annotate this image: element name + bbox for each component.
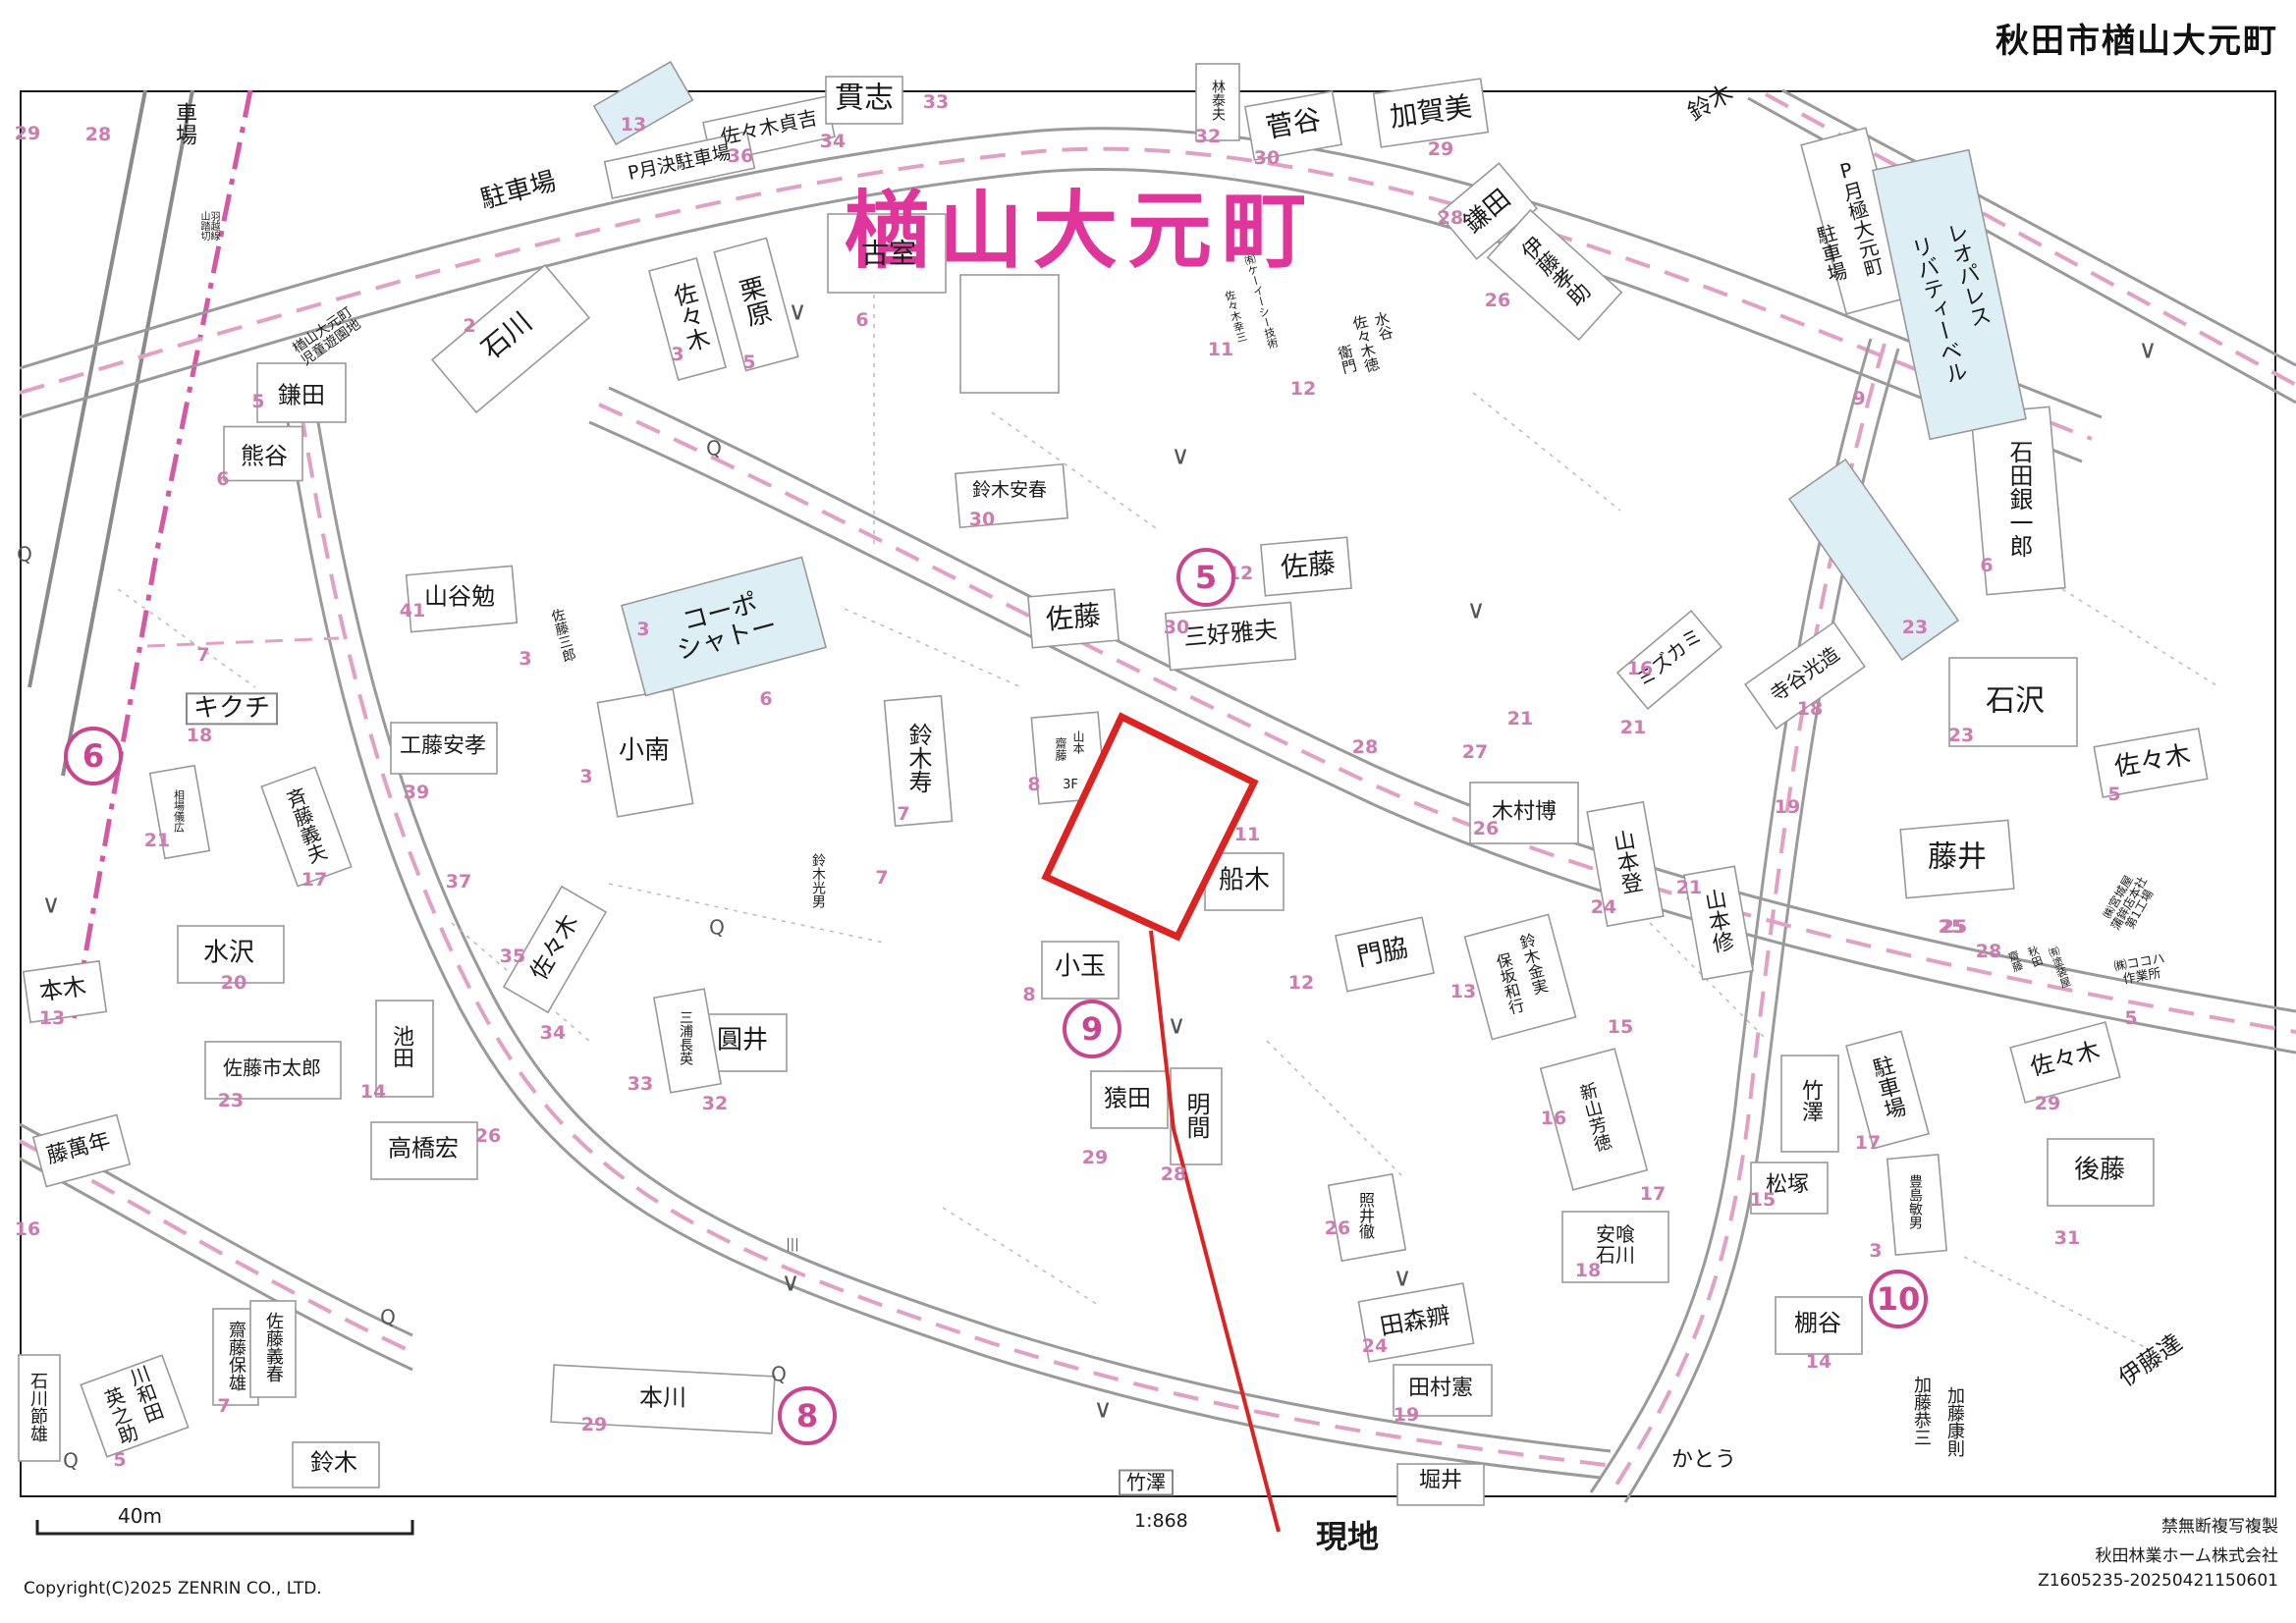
- map-label: 高橋宏: [388, 1136, 459, 1161]
- parcel-number: 33: [923, 93, 949, 113]
- parcel-number: 26: [475, 1127, 501, 1147]
- parcel-number: 5: [113, 1451, 126, 1471]
- circled-block-number: 5: [1176, 548, 1235, 607]
- parcel-number: 5: [742, 353, 755, 373]
- parcel-number: 25: [1939, 918, 1964, 938]
- map-label: 佐藤: [1280, 549, 1337, 582]
- parcel-number: 28: [1438, 209, 1463, 229]
- map-label: 石川節雄: [28, 1372, 46, 1442]
- parcel-number: 3: [636, 621, 649, 640]
- parcel-number: 23: [218, 1092, 244, 1111]
- circled-block-number: 6: [64, 727, 123, 785]
- notice: 禁無断複写複製: [2161, 1512, 2278, 1537]
- parcel-number: 18: [1575, 1262, 1601, 1281]
- map-label: かとう: [1671, 1448, 1736, 1471]
- map-symbol: Q: [771, 1365, 787, 1385]
- map-label: 古室: [861, 239, 916, 267]
- map-label: 林泰夫: [1211, 80, 1225, 121]
- parcel-number: 3: [671, 346, 683, 365]
- map-symbol: Q: [380, 1308, 396, 1328]
- document-code: Z1605235-20250421150601: [2038, 1571, 2278, 1591]
- parcel-number: 5: [251, 393, 264, 412]
- parcel-number: 12: [1290, 380, 1316, 400]
- parcel-number: 24: [1362, 1337, 1388, 1357]
- parcel-number: 6: [759, 690, 772, 710]
- parcel-number: 26: [1485, 292, 1510, 311]
- map-symbol: Q: [709, 918, 725, 939]
- map-symbol: ∨: [1093, 1396, 1112, 1423]
- map-label: 船木: [1219, 867, 1270, 893]
- railway-line: [63, 90, 192, 776]
- parcel-number: 26: [1325, 1219, 1350, 1239]
- map-symbol: ∨: [1171, 443, 1189, 469]
- parcel-number: 6: [1980, 557, 1993, 576]
- map-label: 3F: [1063, 779, 1078, 792]
- parcel-number: 23: [1948, 727, 1974, 746]
- map-label: 山谷勉: [424, 584, 495, 609]
- parcel-number: 9: [1852, 390, 1865, 409]
- map-label: 木村博: [1492, 800, 1557, 823]
- scale-bar: [37, 1520, 412, 1534]
- map-symbol: Q: [63, 1451, 79, 1472]
- map-label: 佐藤: [1045, 601, 1102, 634]
- parcel-number: 8: [1022, 986, 1035, 1005]
- building-outline: [960, 275, 1059, 393]
- parcel-number: 17: [1855, 1134, 1881, 1154]
- parcel-number: 34: [820, 133, 846, 152]
- map-label: 鈴木光男: [811, 853, 825, 908]
- map-symbol: ∨: [1167, 1012, 1185, 1039]
- parcel-number: 29: [15, 125, 40, 144]
- map-label: 佐藤市太郎: [223, 1058, 321, 1079]
- map-label: 安喰 石川: [1596, 1224, 1635, 1266]
- railway-line: [29, 90, 145, 687]
- parcel-number: 12: [1288, 974, 1314, 994]
- parcel-number: 20: [221, 974, 246, 994]
- parcel-number: 27: [1462, 743, 1488, 763]
- map-label: 豊島敏男: [1908, 1174, 1922, 1229]
- parcel-number: 29: [1428, 140, 1453, 160]
- parcel-number: 3: [579, 768, 592, 787]
- map-label: 石田銀一郎: [2007, 440, 2031, 558]
- parcel-number: 19: [1775, 798, 1800, 818]
- parcel-number: 34: [540, 1024, 566, 1044]
- map-label: 相場儀広: [174, 789, 185, 833]
- circled-block-number: 9: [1063, 1000, 1121, 1058]
- parcel-number: 32: [702, 1095, 728, 1114]
- map-symbol: ∨: [2138, 337, 2157, 363]
- map-label: 山本: [1072, 730, 1084, 754]
- map-label: 鈴木寿: [906, 723, 930, 793]
- scale-label: 40m: [118, 1504, 162, 1528]
- parcel-number: 32: [1195, 128, 1221, 147]
- parcel-number: 6: [855, 311, 868, 331]
- parcel-number: 39: [404, 784, 429, 803]
- map-label: 齋藤保雄: [227, 1321, 245, 1391]
- parcel-number: 7: [875, 869, 888, 889]
- parcel-number: 28: [1161, 1165, 1186, 1185]
- parcel-number: 17: [301, 871, 327, 891]
- parcel-number: 13: [1450, 983, 1476, 1002]
- map-label: 明間: [1184, 1092, 1208, 1139]
- map-label: 田村憲: [1408, 1377, 1473, 1399]
- site-label: 現地: [1316, 1512, 1379, 1557]
- map-label: 佐藤義春: [264, 1312, 282, 1382]
- parcel-number: 18: [1797, 700, 1823, 720]
- map-label: 鈴木安春: [972, 481, 1047, 501]
- parcel-number: 3: [1869, 1242, 1882, 1262]
- map-symbol: ∨: [41, 892, 60, 918]
- map-label: 圓井: [717, 1027, 768, 1054]
- parcel-number: 18: [187, 727, 212, 746]
- parcel-number: 21: [1507, 710, 1533, 730]
- map-label: 竹澤: [1799, 1079, 1821, 1122]
- parcel-number: 36: [728, 147, 753, 167]
- parcel-number: 7: [217, 1397, 230, 1417]
- map-label: 池田: [390, 1025, 411, 1068]
- map-label: 小南: [619, 737, 670, 764]
- parcel-number: 15: [1608, 1018, 1633, 1038]
- parcel-number: 14: [360, 1083, 386, 1103]
- building-outline: [1465, 914, 1576, 1039]
- parcel-number: 6: [216, 470, 229, 490]
- parcel-number: 5: [2124, 1009, 2137, 1029]
- map-label: 水沢: [203, 940, 254, 966]
- circled-block-number: 10: [1869, 1270, 1928, 1328]
- parcel-number: 31: [2054, 1229, 2080, 1249]
- map-symbol: Q: [17, 545, 32, 566]
- map-label: 三浦長英: [679, 1010, 692, 1065]
- parcel-number: 24: [1591, 898, 1616, 918]
- parcel-number: 7: [196, 646, 209, 666]
- parcel-number: 2: [463, 317, 475, 337]
- parcel-number: 30: [1254, 149, 1280, 169]
- parcel-number: 29: [2035, 1095, 2060, 1114]
- map-label: 貫志: [835, 82, 894, 114]
- parcel-number: 3: [519, 650, 531, 670]
- parcel-number: 26: [1473, 820, 1499, 839]
- parcel-number: 21: [144, 832, 170, 851]
- road-edge: [309, 368, 1611, 1451]
- map-label: キクチ: [186, 692, 278, 725]
- company: 秋田林業ホーム株式会社: [2096, 1542, 2279, 1566]
- map-label: 加藤康則: [1945, 1386, 1963, 1457]
- parcel-number: 37: [446, 873, 471, 893]
- map-label: 藤井: [1928, 841, 1987, 873]
- parcel-number: 21: [1676, 879, 1702, 898]
- parcel-number: 23: [1902, 619, 1928, 638]
- parcel-number: 21: [1620, 719, 1646, 738]
- boundary-line: [147, 638, 339, 646]
- parcel-number: 28: [1976, 943, 2001, 962]
- parcel-number: 17: [1640, 1185, 1666, 1205]
- parcel-number: 28: [1352, 738, 1378, 758]
- map-label: 車場: [173, 102, 194, 145]
- railway-centerline: [74, 90, 250, 1021]
- map-label: 羽越線 山踏切: [198, 211, 218, 241]
- map-label: 後藤: [2074, 1157, 2125, 1183]
- parcel-number: 8: [1027, 776, 1040, 795]
- parcel-number: 13: [621, 116, 646, 135]
- parcel-number: 30: [969, 511, 995, 530]
- map-label: 堀井: [1419, 1469, 1462, 1491]
- map-symbol: ∨: [788, 298, 806, 325]
- map-label: 熊谷: [241, 444, 288, 468]
- scale-ratio: 1:868: [1134, 1510, 1188, 1532]
- parcel-number: 35: [500, 947, 525, 967]
- map-symbol: ∨: [1466, 597, 1485, 623]
- map-label: 齋藤: [1055, 737, 1066, 761]
- map-page: 秋田市楢山大元町: [0, 0, 2296, 1623]
- map-symbol: ∨: [1393, 1265, 1411, 1291]
- parcel-number: 16: [1627, 660, 1653, 679]
- parcel-number: 29: [581, 1416, 607, 1435]
- parcel-number: 7: [897, 805, 909, 825]
- map-symbol: Q: [706, 439, 722, 460]
- map-symbol: |||: [786, 1238, 798, 1252]
- map-label: 石沢: [1986, 685, 2045, 717]
- parcel-number: 13: [39, 1009, 65, 1029]
- parcel-number: 41: [400, 602, 425, 622]
- map-label: 照井徹: [1357, 1192, 1373, 1239]
- map-label: 鎌田: [278, 383, 325, 407]
- map-label: 棚谷: [1794, 1311, 1841, 1335]
- map-label: 加藤恭三: [1912, 1376, 1930, 1446]
- parcel-number: 16: [15, 1220, 40, 1240]
- parcel-number: 30: [1164, 619, 1189, 638]
- parcel-number: 19: [1394, 1406, 1419, 1426]
- parcel-number: 11: [1208, 341, 1233, 360]
- parcel-number: 11: [1234, 826, 1260, 845]
- map-symbol: ∨: [781, 1270, 799, 1296]
- parcel-number: 15: [1750, 1191, 1776, 1211]
- parcel-number: 29: [1082, 1149, 1108, 1168]
- map-label: 猿田: [1104, 1086, 1151, 1110]
- map-label: 本川: [639, 1385, 686, 1410]
- parcel-number: 5: [2107, 785, 2120, 805]
- map-label: 鈴木: [310, 1450, 357, 1475]
- parcel-number: 16: [1541, 1109, 1566, 1129]
- parcel-number: 14: [1806, 1353, 1831, 1373]
- circled-block-number: 8: [778, 1386, 837, 1445]
- parcel-number: 33: [628, 1075, 653, 1095]
- map-label: 小玉: [1055, 953, 1106, 980]
- copyright: Copyright(C)2025 ZENRIN CO., LTD.: [24, 1579, 322, 1598]
- parcel-number: 28: [85, 126, 111, 145]
- map-label: 竹澤: [1119, 1470, 1174, 1496]
- map-label: 工藤安孝: [400, 734, 486, 757]
